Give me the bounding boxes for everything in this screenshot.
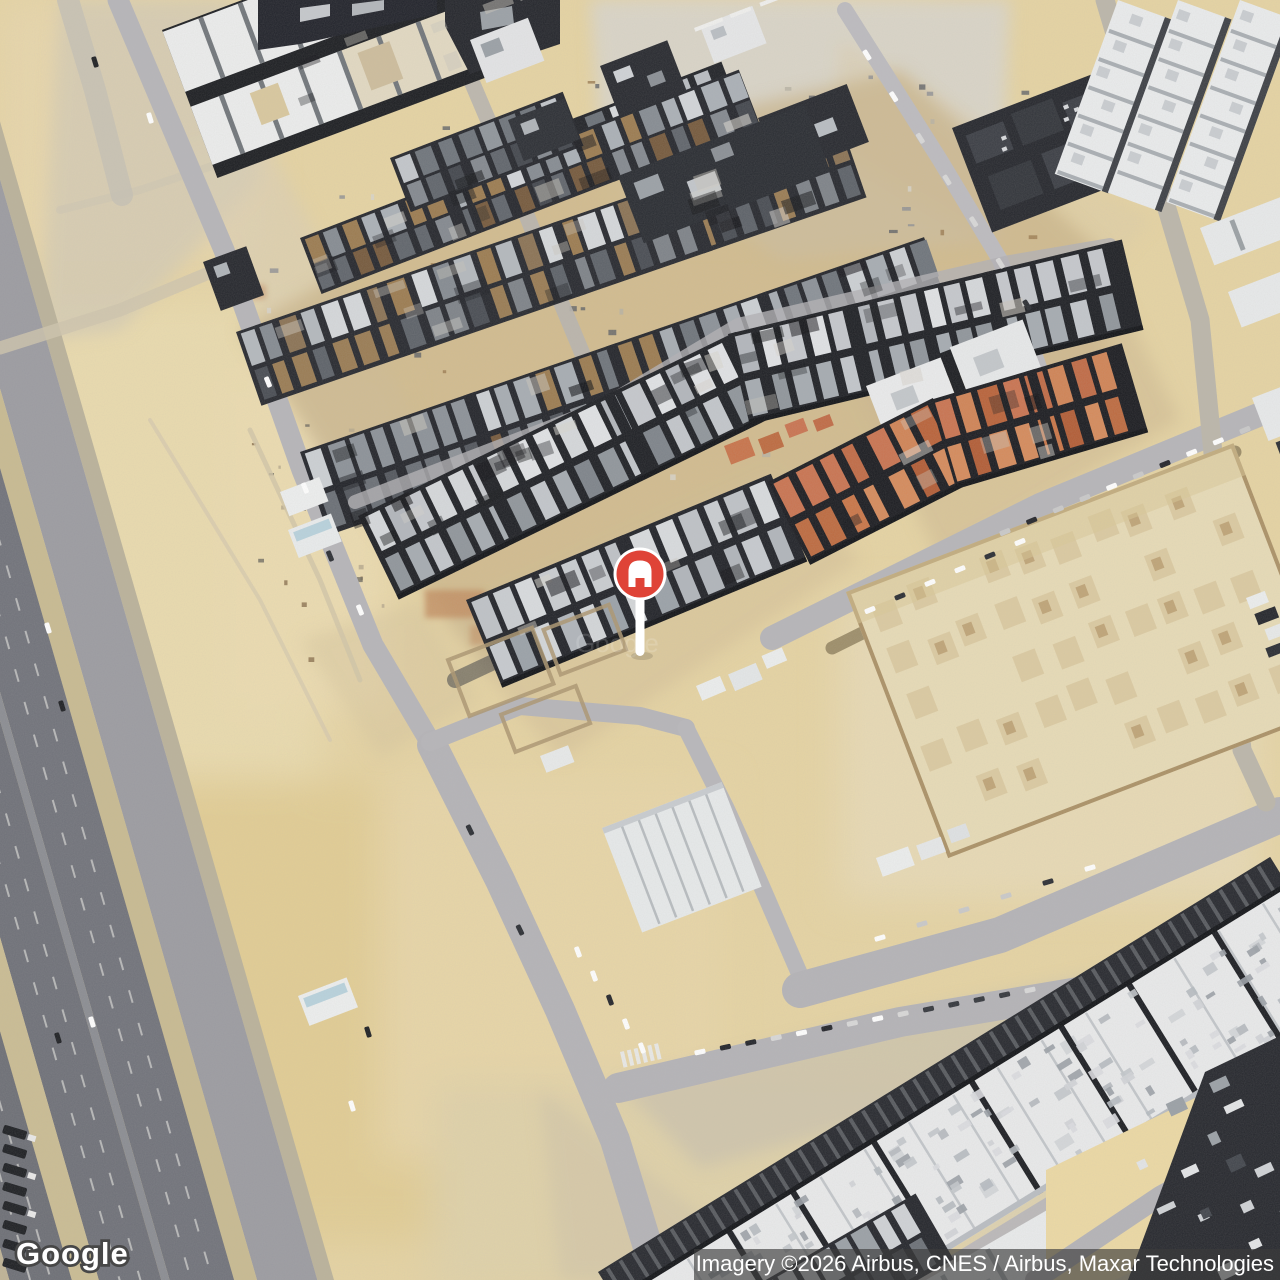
svg-text:Google: Google xyxy=(16,1236,129,1271)
svg-text:Imagery ©2026 Airbus, CNES / A: Imagery ©2026 Airbus, CNES / Airbus, Max… xyxy=(696,1251,1274,1276)
